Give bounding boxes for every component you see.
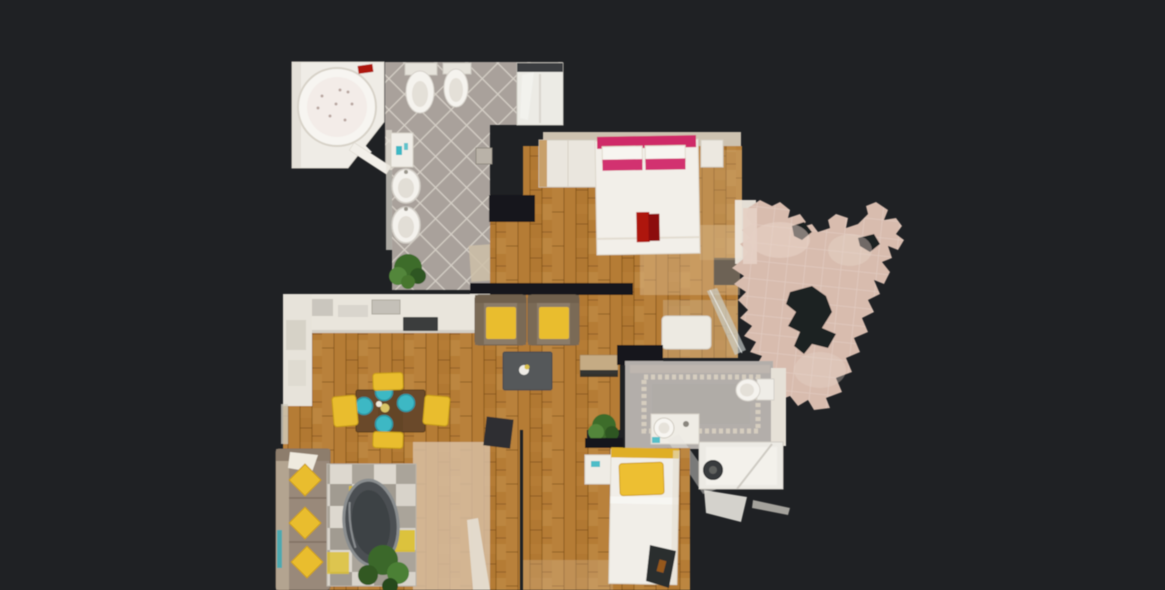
bath-mat: [469, 244, 493, 281]
teal-plate: [376, 416, 393, 433]
terrace-light-patch: [828, 234, 872, 266]
wall-sink: [392, 169, 420, 203]
floor-light-patch: [523, 560, 613, 590]
pink-pillow: [602, 159, 642, 171]
coffee-table: [503, 352, 552, 390]
dark-chair: [483, 417, 513, 449]
wall-sink: [392, 207, 420, 243]
nightstand: [585, 455, 611, 484]
armchair: [475, 295, 526, 345]
scale: [476, 148, 492, 164]
floorplan-svg: [0, 0, 1165, 590]
wardrobe: [539, 140, 597, 187]
room-second-bedroom: [523, 447, 690, 590]
terrace-threshold: [743, 208, 757, 264]
dining-chair: [332, 395, 359, 427]
terrace-light-patch: [794, 352, 846, 388]
dining-chair: [373, 431, 404, 448]
floorplan-canvas[interactable]: [0, 0, 1165, 590]
console-desk: [662, 316, 711, 349]
red-clothes-on-bed: [648, 214, 659, 241]
wall-segment: [489, 195, 535, 222]
corner-jacuzzi-tub: [292, 62, 384, 168]
bedside-table: [701, 140, 723, 167]
teal-plate: [356, 398, 373, 415]
terrace-light-patch: [750, 222, 810, 258]
wall-shelf: [580, 355, 618, 377]
centerpiece: [376, 401, 382, 407]
toilet: [736, 379, 774, 401]
teal-plate: [398, 395, 415, 412]
dining-chair: [423, 395, 450, 426]
sofa-with-yellow-cushions: [276, 449, 330, 590]
cooktop: [403, 317, 438, 331]
vanity-cabinet: [391, 133, 413, 167]
shower-enclosure: [699, 442, 783, 489]
shower-cabin: [517, 63, 563, 125]
dining-chair: [373, 372, 404, 390]
pink-pillow: [645, 158, 685, 170]
double-bed: [595, 135, 700, 255]
yellow-pillow: [619, 462, 664, 496]
dining-table: [356, 384, 426, 433]
tile-strip: [630, 365, 770, 373]
armchair: [528, 295, 579, 345]
red-clothes-on-bed: [636, 212, 650, 242]
teal-throw: [277, 530, 282, 568]
